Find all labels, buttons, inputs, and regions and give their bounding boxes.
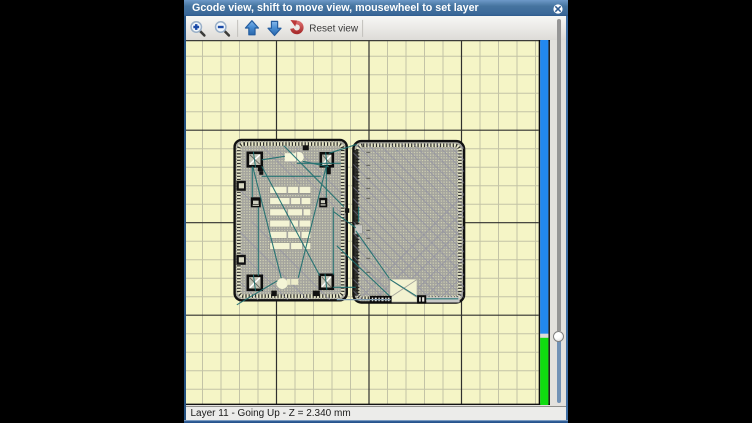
svg-text:Reset view: Reset view bbox=[310, 23, 360, 34]
